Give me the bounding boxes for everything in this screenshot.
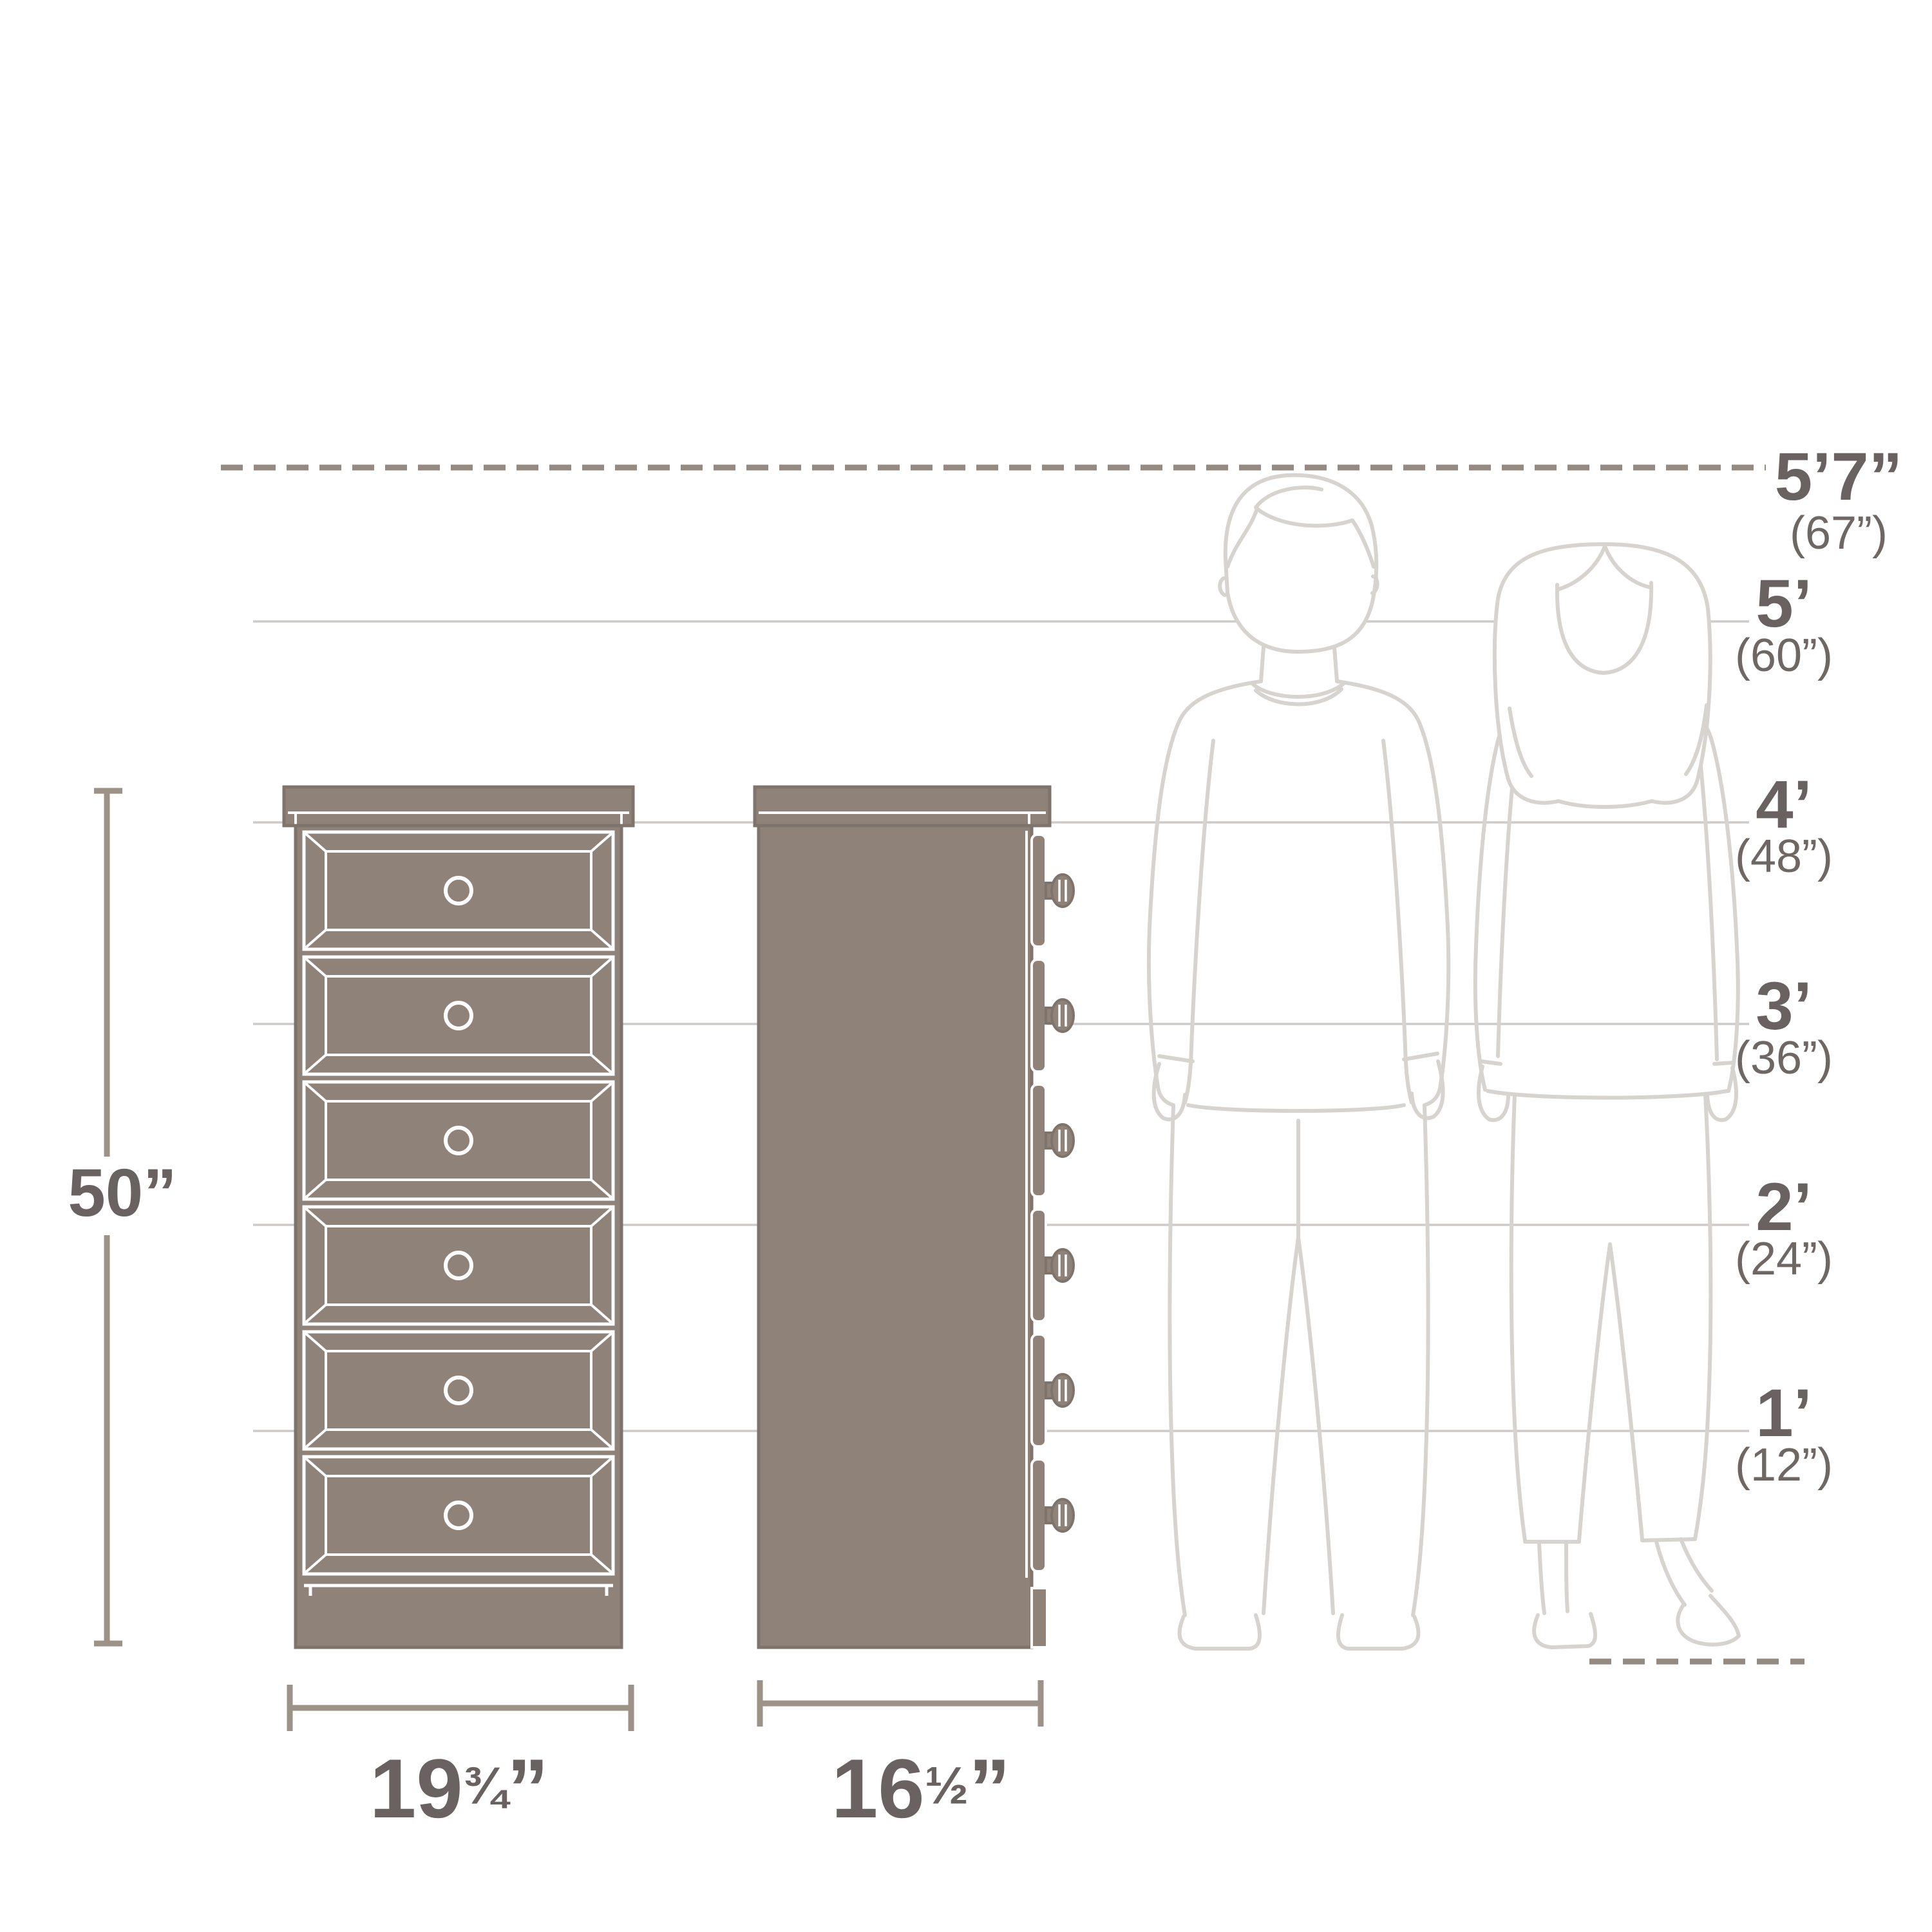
- man-sweater-hem: [1188, 1105, 1404, 1111]
- drawer-3-knob-icon: [446, 1128, 471, 1153]
- man-figure-icon: [1149, 475, 1448, 1649]
- marker-feet-label: 2’: [1687, 1173, 1880, 1241]
- man-right-shoe: [1338, 1615, 1418, 1649]
- chest-front-view: [284, 787, 633, 1647]
- side-knob-icon: [1046, 1374, 1074, 1406]
- marker-inches-label: (48”): [1687, 833, 1880, 880]
- man-left-inner-arm: [1185, 741, 1213, 1103]
- width-fraction: ¾: [463, 1757, 507, 1815]
- marker-feet-label: 3’: [1687, 972, 1880, 1040]
- depth-unit: ”: [969, 1741, 1010, 1835]
- depth-whole: 16: [831, 1741, 925, 1835]
- man-legs-inner: [1264, 1121, 1333, 1613]
- side-body: [759, 826, 1032, 1647]
- side-knobs: [1046, 875, 1074, 1531]
- side-base-step: [1032, 1588, 1047, 1647]
- man-head: [1226, 475, 1376, 652]
- side-knob-icon: [1046, 999, 1074, 1032]
- man-left-leg-outer: [1170, 1106, 1185, 1615]
- man-right-inner-arm: [1383, 741, 1412, 1103]
- width-dimension-line: [290, 1685, 631, 1731]
- woman-legs-inner: [1579, 1244, 1642, 1540]
- width-dimension-label: 19¾”: [292, 1747, 627, 1830]
- woman-left-shoe: [1534, 1614, 1595, 1647]
- marker-feet-label: 4’: [1687, 771, 1880, 838]
- dimension-diagram: 50” 19¾” 16½” 5’7” (67”) 5’ (60”) 4’ (48…: [0, 0, 1932, 1932]
- drawer-4-knob-icon: [446, 1253, 471, 1278]
- marker-feet-label: 5’: [1687, 570, 1880, 638]
- woman-pant-cuffs: [1525, 1539, 1695, 1542]
- side-knob-icon: [1046, 875, 1074, 907]
- marker-inches-label: (24”): [1687, 1236, 1880, 1282]
- marker-feet-label: 5’7”: [1742, 443, 1932, 511]
- marker-inches-label: (67”): [1742, 510, 1932, 556]
- depth-dimension-line: [760, 1680, 1041, 1727]
- side-knob-icon: [1046, 1249, 1074, 1282]
- depth-dimension-label: 16½”: [753, 1747, 1088, 1830]
- depth-fraction: ½: [925, 1757, 969, 1815]
- drawer-2-knob-icon: [446, 1003, 471, 1028]
- drawer-6-knob-icon: [446, 1502, 471, 1528]
- woman-sweater-hem: [1488, 1091, 1727, 1098]
- marker-inches-label: (36”): [1687, 1035, 1880, 1081]
- chest-side-view: [755, 787, 1074, 1647]
- man-left-shoe: [1180, 1615, 1260, 1649]
- drawer-5-knob-icon: [446, 1378, 471, 1403]
- woman-left-leg-outer: [1511, 1095, 1525, 1540]
- side-top-board: [755, 787, 1050, 826]
- width-whole: 19: [370, 1741, 463, 1835]
- side-knob-icon: [1046, 1499, 1074, 1531]
- woman-right-ankle: [1656, 1539, 1712, 1605]
- man-collar: [1253, 683, 1345, 705]
- marker-inches-label: (12”): [1687, 1442, 1880, 1488]
- scale-figures: [1149, 475, 1739, 1649]
- side-drawer-edges: [1032, 835, 1047, 1647]
- man-cuffs: [1159, 1054, 1437, 1061]
- diagram-scene: [0, 0, 1932, 1932]
- woman-right-shoe: [1678, 1596, 1739, 1645]
- width-unit: ”: [507, 1741, 549, 1835]
- man-right-leg-outer: [1413, 1106, 1428, 1615]
- man-left-arm-outline: [1149, 681, 1261, 1105]
- marker-inches-label: (60”): [1687, 632, 1880, 679]
- side-knob-icon: [1046, 1124, 1074, 1157]
- height-dimension-label: 50”: [45, 1159, 200, 1227]
- front-top-board: [284, 787, 633, 826]
- woman-left-ankle: [1539, 1543, 1567, 1613]
- man-right-arm-outline: [1337, 681, 1448, 1105]
- drawer-1-knob-icon: [446, 878, 471, 904]
- marker-feet-label: 1’: [1687, 1379, 1880, 1447]
